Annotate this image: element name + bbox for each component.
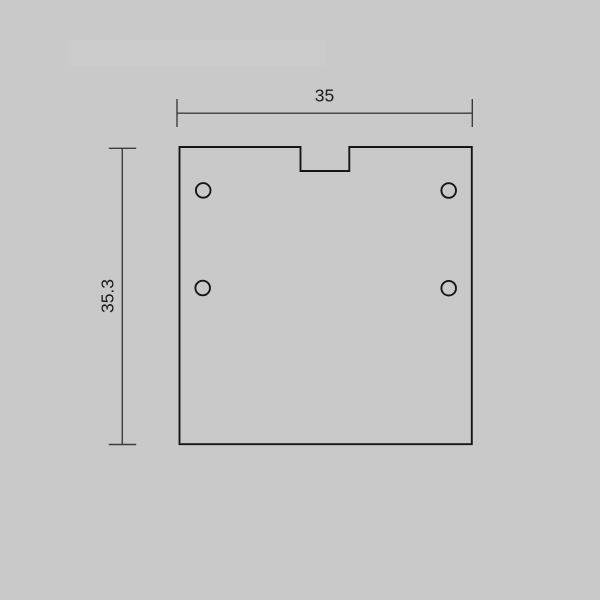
svg-text:35: 35 [315,85,334,105]
svg-text:35.3: 35.3 [97,279,117,313]
